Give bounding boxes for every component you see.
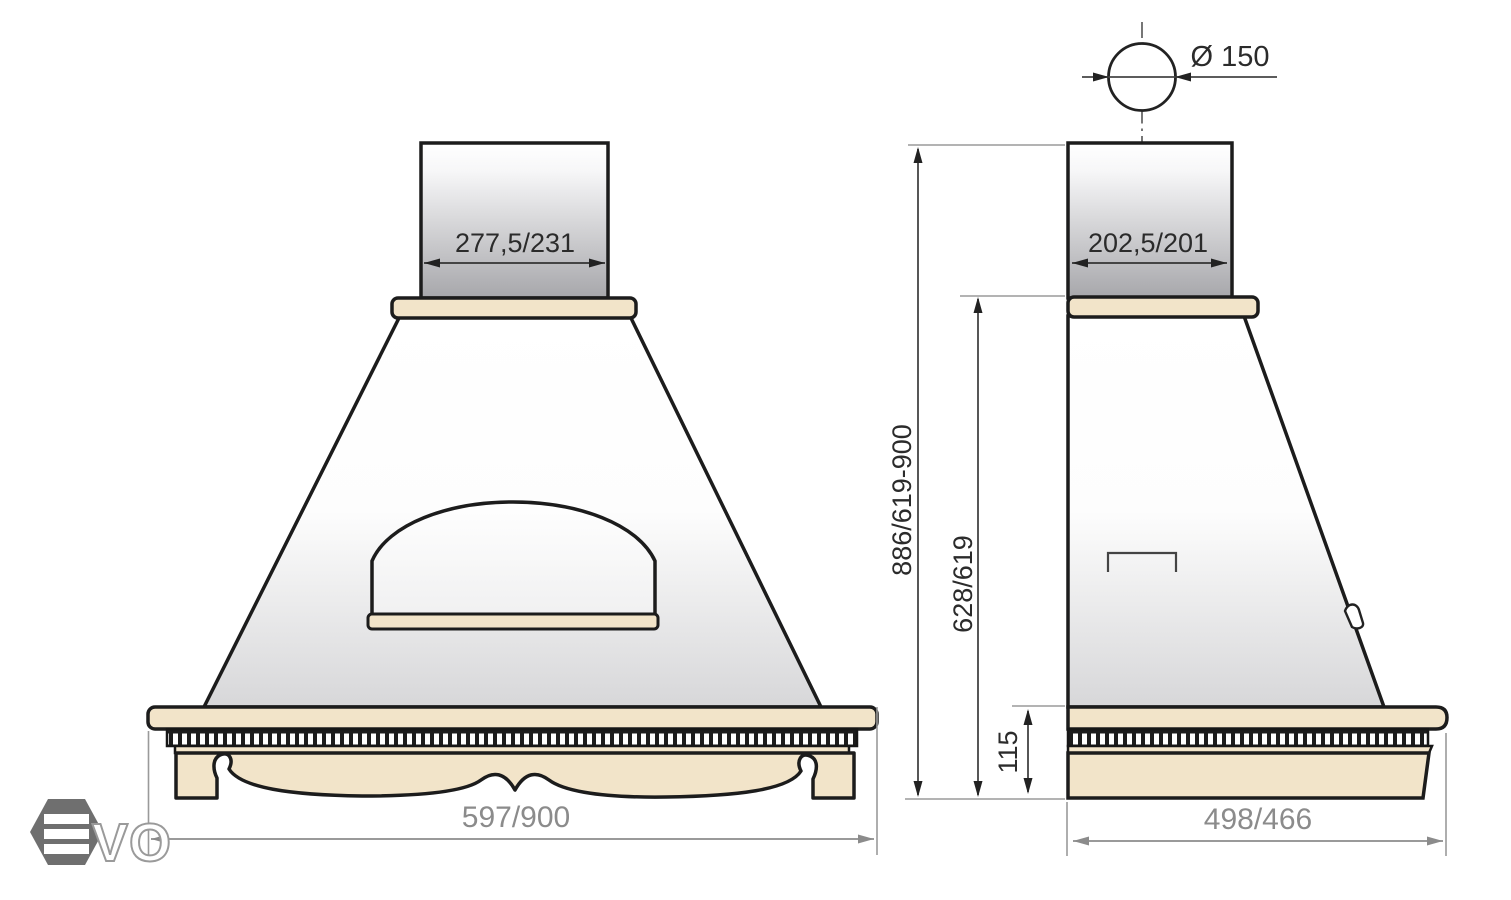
side-duct-shelf xyxy=(1068,297,1258,317)
front-duct xyxy=(421,143,608,298)
logo-e-bar xyxy=(44,844,89,854)
arrow-right-icon xyxy=(858,835,874,844)
canopy-height-label: 628/619 xyxy=(948,535,978,633)
technical-drawing-canvas: 277,5/231 597/900 Ø 15 xyxy=(0,0,1511,900)
front-view: 277,5/231 597/900 xyxy=(148,143,877,855)
front-duct-shelf xyxy=(392,298,636,318)
front-skirt-valance xyxy=(176,753,854,798)
side-duct xyxy=(1068,143,1232,298)
arrow-up-icon xyxy=(1024,709,1033,725)
logo-e-bar xyxy=(44,814,89,824)
side-base-panel xyxy=(1068,753,1429,798)
evo-logo: VO xyxy=(30,799,172,873)
front-overall-width-label: 597/900 xyxy=(462,801,570,834)
side-cornice-shelf xyxy=(1068,707,1447,729)
front-duct-width-label: 277,5/231 xyxy=(455,228,575,258)
overall-height-dimension: 886/619-900 xyxy=(887,145,1065,799)
arrow-down-icon xyxy=(914,781,923,797)
arrow-down-icon xyxy=(974,781,983,797)
logo-e-bar xyxy=(44,829,89,839)
side-dentil-molding xyxy=(1068,729,1428,746)
arrow-right-icon xyxy=(1093,73,1109,82)
side-canopy xyxy=(1068,316,1384,707)
arrow-right-icon xyxy=(1427,837,1443,846)
overall-depth-label: 498/466 xyxy=(1204,803,1312,836)
base-height-dimension: 115 xyxy=(993,706,1065,794)
side-duct-depth-label: 202,5/201 xyxy=(1088,228,1208,258)
flue-diameter-label: Ø 150 xyxy=(1191,41,1270,73)
front-dentil-molding xyxy=(167,729,857,746)
arrow-left-icon xyxy=(1073,837,1089,846)
side-view: Ø 150 202,5/201 886/619-900 xyxy=(887,22,1447,856)
overall-height-label: 886/619-900 xyxy=(887,424,917,576)
arrow-up-icon xyxy=(974,297,983,313)
base-height-label: 115 xyxy=(993,730,1023,773)
canopy-height-dimension: 628/619 xyxy=(948,296,1065,797)
logo-outline-letters: VO xyxy=(92,813,172,873)
arrow-up-icon xyxy=(914,147,923,163)
front-cornice-shelf xyxy=(148,707,877,729)
arrow-down-icon xyxy=(1024,778,1033,794)
technical-drawing-page: 277,5/231 597/900 Ø 15 xyxy=(0,0,1511,900)
front-arch-sill xyxy=(368,614,658,629)
arrow-left-icon xyxy=(1175,73,1191,82)
